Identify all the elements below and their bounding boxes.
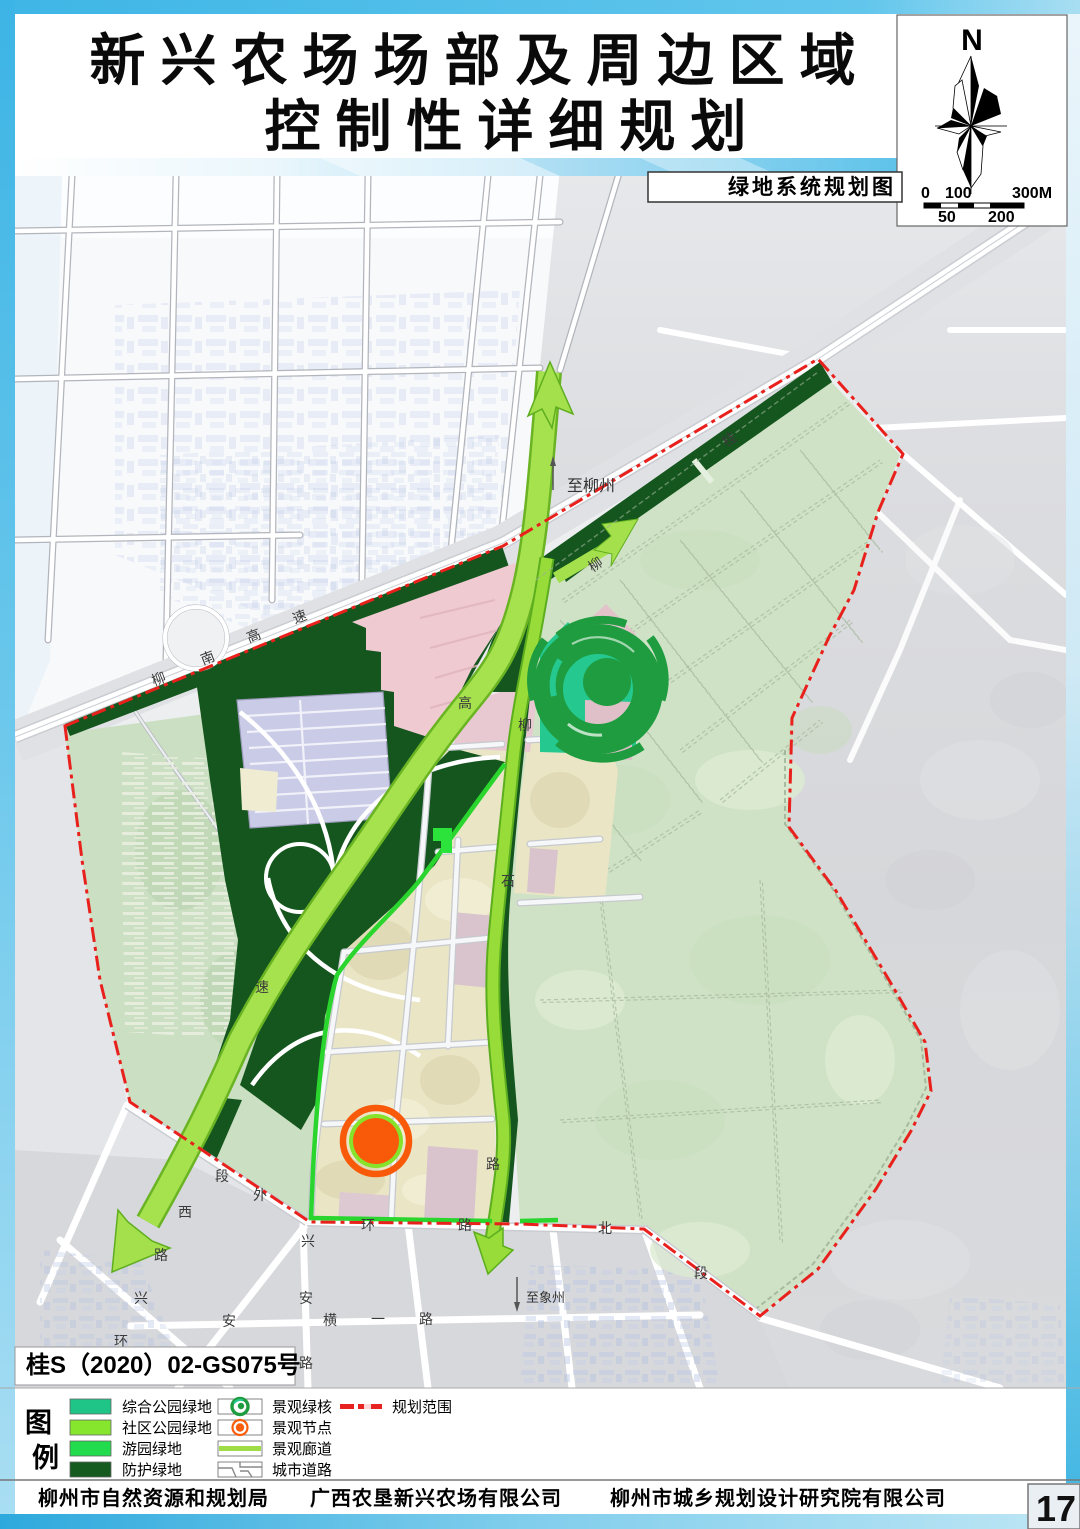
svg-text:段: 段	[694, 1265, 708, 1281]
svg-text:防护绿地: 防护绿地	[122, 1462, 182, 1479]
svg-text:规划范围: 规划范围	[392, 1399, 452, 1416]
svg-text:北: 北	[598, 1220, 612, 1236]
svg-text:例: 例	[32, 1443, 59, 1473]
svg-text:桂S（2020）02-GS075号: 桂S（2020）02-GS075号	[26, 1352, 301, 1379]
svg-text:景观廊道: 景观廊道	[272, 1441, 332, 1458]
svg-text:兴: 兴	[134, 1290, 148, 1306]
svg-text:城市道路: 城市道路	[272, 1462, 332, 1479]
svg-text:柳: 柳	[518, 717, 532, 733]
svg-text:路: 路	[299, 1355, 313, 1371]
svg-text:安: 安	[299, 1290, 313, 1306]
svg-text:新兴农场场部及周边区域: 新兴农场场部及周边区域	[90, 29, 871, 92]
svg-text:高: 高	[458, 695, 472, 711]
svg-text:速: 速	[255, 979, 269, 995]
svg-text:17: 17	[1036, 1488, 1076, 1529]
svg-text:石: 石	[501, 873, 515, 889]
svg-text:至柳州: 至柳州	[567, 477, 615, 495]
svg-text:兴: 兴	[301, 1233, 315, 1249]
svg-text:至象州: 至象州	[526, 1290, 565, 1305]
svg-text:环: 环	[361, 1217, 375, 1233]
svg-text:路: 路	[419, 1311, 433, 1327]
svg-text:横: 横	[323, 1312, 337, 1328]
svg-text:N: N	[961, 24, 983, 57]
svg-text:游园绿地: 游园绿地	[122, 1441, 182, 1458]
svg-text:西: 西	[178, 1204, 192, 1220]
svg-text:社区公园绿地: 社区公园绿地	[122, 1420, 212, 1437]
svg-text:柳州市城乡规划设计研究院有限公司: 柳州市城乡规划设计研究院有限公司	[610, 1486, 946, 1510]
svg-text:一: 一	[371, 1311, 385, 1327]
svg-text:安: 安	[222, 1313, 236, 1329]
svg-text:路: 路	[486, 1156, 500, 1172]
svg-text:柳州市自然资源和规划局: 柳州市自然资源和规划局	[38, 1486, 269, 1510]
svg-text:100: 100	[945, 185, 972, 202]
svg-text:景观绿核: 景观绿核	[272, 1399, 332, 1416]
svg-text:300M: 300M	[1012, 185, 1052, 202]
svg-text:路: 路	[458, 1217, 472, 1233]
svg-text:图: 图	[25, 1408, 52, 1438]
svg-text:0: 0	[921, 185, 930, 202]
svg-text:广西农垦新兴农场有限公司: 广西农垦新兴农场有限公司	[310, 1486, 562, 1510]
svg-text:综合公园绿地: 综合公园绿地	[122, 1399, 212, 1416]
svg-text:外: 外	[253, 1187, 267, 1203]
svg-text:景观节点: 景观节点	[272, 1420, 332, 1437]
svg-text:路: 路	[154, 1247, 168, 1263]
svg-text:控制性详细规划: 控制性详细规划	[265, 95, 762, 158]
svg-text:段: 段	[215, 1168, 229, 1184]
svg-text:200: 200	[988, 209, 1015, 226]
svg-text:50: 50	[938, 209, 956, 226]
svg-text:绿地系统规划图: 绿地系统规划图	[728, 175, 896, 199]
